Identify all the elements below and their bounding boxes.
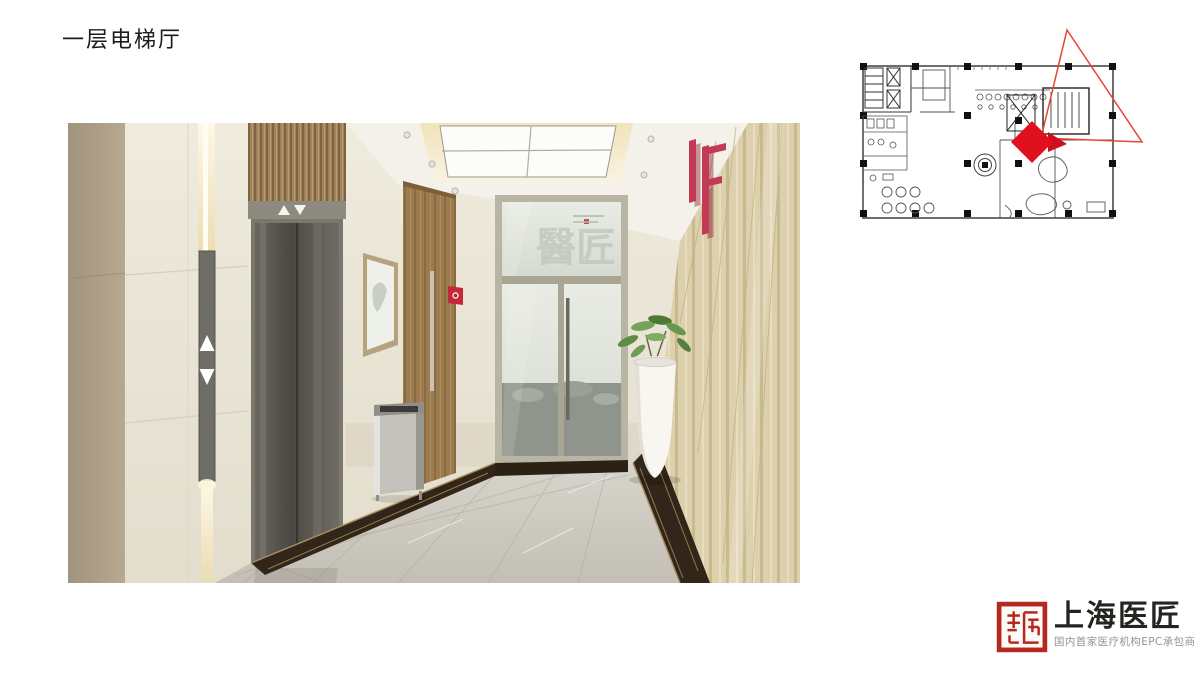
company-name: 上海医匠: [1054, 600, 1195, 633]
plan-outer-wall: [863, 66, 1113, 218]
glass-logo-watermark: 醫匠: [536, 225, 616, 271]
logo-seal-icon: [996, 601, 1048, 653]
left-elevator-wall: [125, 123, 248, 583]
alarm-button: [448, 286, 463, 305]
trash-bin: [372, 402, 428, 503]
page-title: 一层电梯厅: [62, 22, 182, 54]
company-tagline: 国内首家医疗机构EPC承包商: [1054, 634, 1195, 649]
floor-plan-thumbnail: [855, 20, 1155, 230]
company-logo: 上海医匠 国内首家医疗机构EPC承包商: [996, 600, 1192, 658]
glass-door-handle: [566, 298, 570, 420]
glass-doorway: 醫匠: [495, 195, 628, 463]
rendering-scene: 醫匠: [68, 123, 800, 583]
wood-slat-header: [248, 123, 346, 201]
elevator-hall-rendering: 醫匠: [68, 123, 800, 583]
door-handle: [430, 271, 434, 391]
elevator: [248, 123, 346, 563]
floor-plan-drawing: [855, 20, 1155, 230]
left-side-wall: [68, 123, 125, 583]
